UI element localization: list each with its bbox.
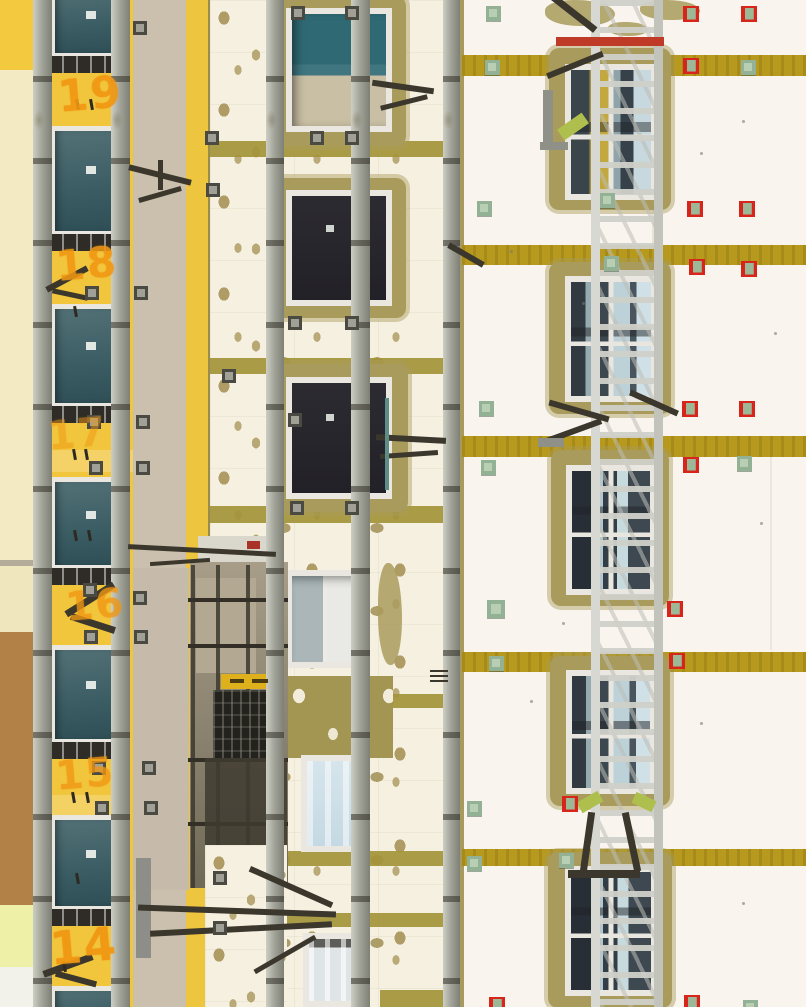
scaffold-hardware (568, 870, 640, 878)
hoist-mast (591, 0, 663, 1007)
red-anchor-marker (687, 201, 703, 217)
scaffold-hardware (247, 541, 260, 549)
far-left-wall-bottom (0, 967, 33, 1007)
red-anchor-marker (683, 58, 699, 74)
far-left-wall (0, 70, 33, 562)
red-anchor-marker (689, 259, 705, 275)
scaffold-hardware (430, 680, 448, 682)
red-anchor-marker (741, 6, 757, 22)
green-anchor-marker (481, 460, 496, 475)
wall-speck (774, 332, 777, 335)
facade-anchor-plate (288, 316, 302, 330)
window-sticker (86, 11, 96, 19)
floor-number: 18 (54, 234, 149, 302)
far-left-wall-low (0, 905, 33, 967)
window-glass (292, 383, 386, 493)
window-sticker (86, 850, 96, 858)
mineral-wool-band (380, 990, 452, 1007)
wall-speck (562, 622, 565, 625)
scaffold-hardware (252, 679, 268, 683)
window-sticker (86, 166, 96, 174)
floor-number: 15 (54, 746, 149, 814)
facade-anchor-plate (291, 6, 305, 20)
facade-anchor-plate (213, 871, 227, 885)
green-anchor-marker (487, 600, 505, 618)
scaffold-post (266, 0, 284, 1007)
facade-anchor-plate (222, 369, 236, 383)
green-anchor-marker (604, 256, 619, 271)
scaffold-hardware (538, 438, 564, 447)
facade-anchor-plate (136, 415, 150, 429)
green-anchor-marker (486, 6, 501, 21)
scaffold-hardware (158, 160, 163, 190)
scaffold-post (33, 0, 52, 1007)
window-glass (55, 309, 115, 403)
green-anchor-marker (485, 60, 500, 75)
window-glass (55, 0, 115, 53)
window-glass (55, 991, 115, 1007)
scaffold-post (443, 0, 460, 1007)
green-anchor-marker (741, 60, 756, 75)
wall-speck (742, 902, 745, 905)
bare-adhesive-panel (283, 676, 393, 758)
green-anchor-marker (600, 193, 615, 208)
facade-anchor-plate (288, 413, 302, 427)
scaffold-hardware (430, 675, 448, 677)
green-anchor-marker (467, 856, 482, 871)
facade-anchor-plate (290, 501, 304, 515)
facade-anchor-plate (345, 501, 359, 515)
floor-number: 19 (56, 64, 151, 132)
window-sticker (86, 342, 96, 350)
far-left-wall-mid (0, 566, 33, 632)
red-anchor-marker (683, 457, 699, 473)
scaffold-hardware (556, 37, 664, 46)
window-glass (292, 14, 386, 126)
scaffold-post (111, 0, 130, 1007)
green-anchor-marker (479, 401, 494, 416)
red-anchor-marker (739, 201, 755, 217)
facade-anchor-plate (345, 131, 359, 145)
wall-speck (760, 522, 763, 525)
window-glass (55, 131, 115, 231)
window-glass (292, 196, 386, 300)
scaffold-hardware (540, 142, 568, 150)
window-sticker (86, 511, 96, 519)
far-left-brown-patch (0, 632, 33, 905)
facade-anchor-plate (206, 183, 220, 197)
wall-speck (530, 700, 533, 703)
green-anchor-marker (489, 656, 504, 671)
red-anchor-marker (562, 796, 578, 812)
facade-seam (770, 440, 772, 650)
far-left-wall-top (0, 0, 33, 70)
window-glass (55, 650, 115, 739)
scaffold-hardware (430, 670, 448, 672)
green-anchor-marker (743, 1000, 758, 1007)
wall-speck (700, 722, 703, 725)
facade-anchor-plate (310, 131, 324, 145)
window-glass (292, 576, 358, 662)
red-anchor-marker (489, 997, 505, 1007)
window-sticker (326, 225, 334, 232)
facade-photo: 191817161514 (0, 0, 806, 1007)
floor-number: 14 (48, 914, 143, 982)
red-anchor-marker (682, 401, 698, 417)
green-anchor-marker (477, 201, 492, 216)
red-anchor-marker (739, 401, 755, 417)
red-anchor-marker (741, 261, 757, 277)
scaffold-tube (191, 565, 195, 888)
red-anchor-marker (669, 653, 685, 669)
wall-speck (700, 152, 703, 155)
window-sticker (326, 414, 334, 421)
window-glass (55, 482, 115, 565)
facade-anchor-plate (345, 6, 359, 20)
floor-number: 16 (64, 577, 159, 645)
facade-anchor-plate (213, 921, 227, 935)
green-anchor-marker (737, 456, 752, 471)
red-anchor-marker (684, 995, 700, 1007)
wall-speck (582, 302, 585, 305)
floor-number: 17 (46, 406, 141, 474)
wall-speck (510, 250, 513, 253)
scaffold-hardware (385, 398, 389, 490)
window-glass (55, 820, 115, 906)
scaffold-hardware (230, 679, 244, 683)
facade-anchor-plate (133, 21, 147, 35)
wall-speck (742, 120, 745, 123)
facade-anchor-plate (205, 131, 219, 145)
scaffold-hardware (543, 90, 553, 146)
facade-anchor-plate (345, 316, 359, 330)
green-anchor-marker (467, 801, 482, 816)
red-anchor-marker (667, 601, 683, 617)
red-anchor-marker (683, 6, 699, 22)
green-anchor-marker (559, 853, 574, 868)
window-sticker (86, 681, 96, 689)
